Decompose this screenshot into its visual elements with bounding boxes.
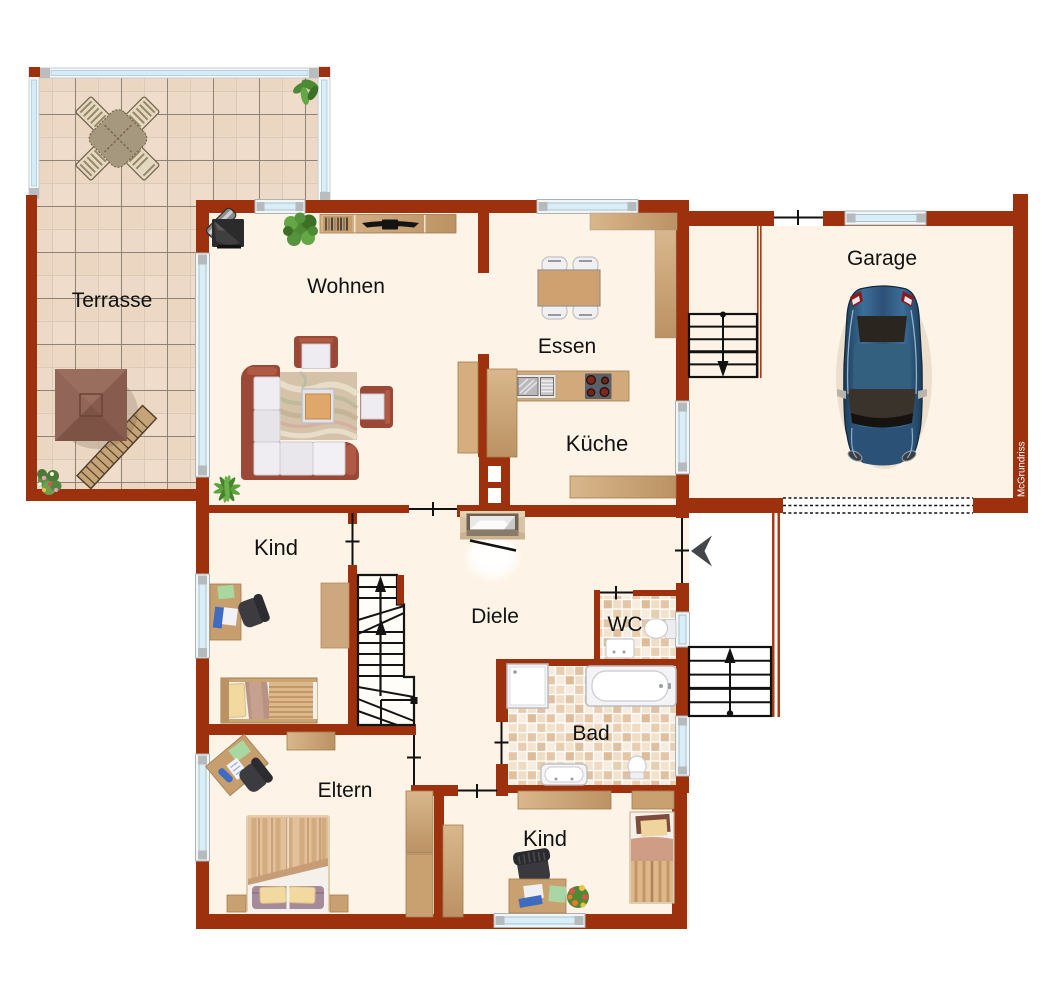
svg-text:Garage: Garage xyxy=(847,247,917,270)
svg-text:Terrasse: Terrasse xyxy=(72,289,153,312)
svg-text:WC: WC xyxy=(608,613,643,636)
svg-text:McGrundriss: McGrundriss xyxy=(1017,441,1028,497)
svg-text:Küche: Küche xyxy=(566,431,628,456)
svg-text:Bad: Bad xyxy=(572,722,609,745)
svg-text:Diele: Diele xyxy=(471,605,519,628)
svg-text:Kind: Kind xyxy=(254,535,298,560)
svg-text:Essen: Essen xyxy=(538,335,596,358)
svg-text:Eltern: Eltern xyxy=(318,779,373,802)
svg-text:Kind: Kind xyxy=(523,826,567,851)
svg-text:Wohnen: Wohnen xyxy=(307,275,385,298)
